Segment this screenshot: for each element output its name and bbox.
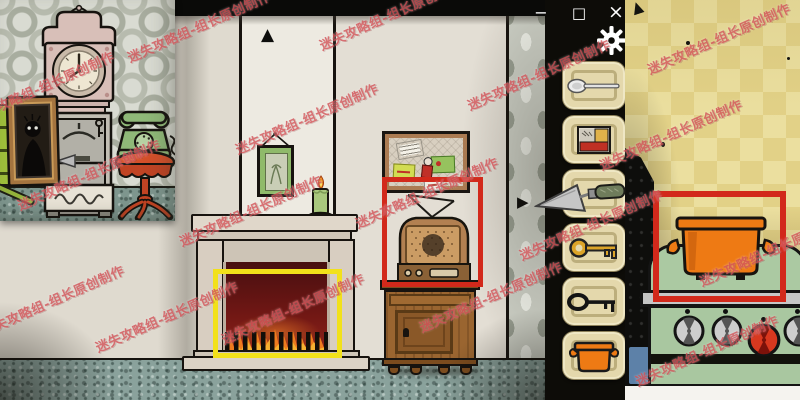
note-scribble: [397, 171, 410, 174]
debris-speck-3: [787, 57, 790, 60]
orange-pot-icon: [569, 338, 619, 374]
right-inset: [625, 0, 800, 400]
stove-knob-2[interactable]: [710, 314, 744, 348]
settings-gear-icon[interactable]: [596, 25, 627, 56]
cabinet-foot-1: [388, 366, 400, 375]
blue-object: [629, 347, 649, 384]
photo-icon: [577, 126, 611, 154]
stove-knob-1[interactable]: [672, 314, 706, 348]
telephone-and-table[interactable]: [112, 100, 175, 220]
cabinet-drawer[interactable]: [389, 294, 471, 306]
mirror-with-shadow-figure[interactable]: [5, 94, 61, 187]
cabinet-door[interactable]: [395, 310, 453, 354]
orange-pot-on-stove[interactable]: [664, 212, 778, 286]
note-dot: [436, 161, 441, 166]
cabinet-base: [382, 358, 478, 366]
cabinet-foot-2: [410, 366, 422, 375]
wooden-cabinet[interactable]: [380, 280, 480, 372]
inventory-slot-orange-pot[interactable]: [563, 332, 625, 379]
cabinet-foot-3: [438, 366, 450, 375]
vintage-radio[interactable]: [392, 190, 476, 284]
gold-key-icon: [568, 235, 620, 261]
debris-speck-1: [686, 41, 690, 45]
maximize-button[interactable]: □: [569, 2, 589, 24]
inventory-slot-photo[interactable]: [563, 116, 625, 163]
note-lime[interactable]: [393, 163, 416, 181]
cabinet-top: [380, 280, 480, 290]
nav-right-arrow[interactable]: ▶: [517, 193, 529, 211]
stove-knob-3[interactable]: [782, 314, 800, 348]
fire-grate: [225, 332, 328, 352]
stove-knob-red[interactable]: [746, 322, 782, 358]
chimney-edge-left: [239, 16, 242, 216]
inventory-slot-spoon[interactable]: [563, 62, 625, 109]
figure-body: [421, 165, 433, 179]
close-button[interactable]: ×: [606, 1, 626, 23]
bottom-strip: [625, 386, 800, 400]
door-panel: [403, 317, 445, 347]
inventory-slot-black-key[interactable]: [563, 278, 625, 325]
fireplace-leg-right: [328, 239, 355, 355]
fireplace-leg-left: [196, 239, 224, 355]
nav-up-arrow[interactable]: ▲: [261, 25, 274, 45]
picture-image: [265, 153, 288, 191]
black-key-icon: [567, 289, 621, 315]
keyhole[interactable]: [403, 328, 409, 337]
spoon-icon: [567, 77, 621, 95]
pinned-figure[interactable]: [420, 156, 433, 177]
cabinet-foot-4: [460, 366, 472, 375]
tag-mark: [428, 184, 437, 187]
minimize-button[interactable]: −: [531, 2, 551, 24]
game-window: ▲ ▶: [0, 0, 800, 400]
debris-speck-2: [661, 142, 665, 147]
note-green[interactable]: [431, 156, 456, 174]
left-inset: [0, 0, 175, 221]
inventory-slot-gold-key[interactable]: [563, 224, 625, 271]
hearth-base: [182, 356, 370, 371]
framed-picture[interactable]: [257, 145, 294, 197]
trowel-item[interactable]: [533, 178, 629, 222]
